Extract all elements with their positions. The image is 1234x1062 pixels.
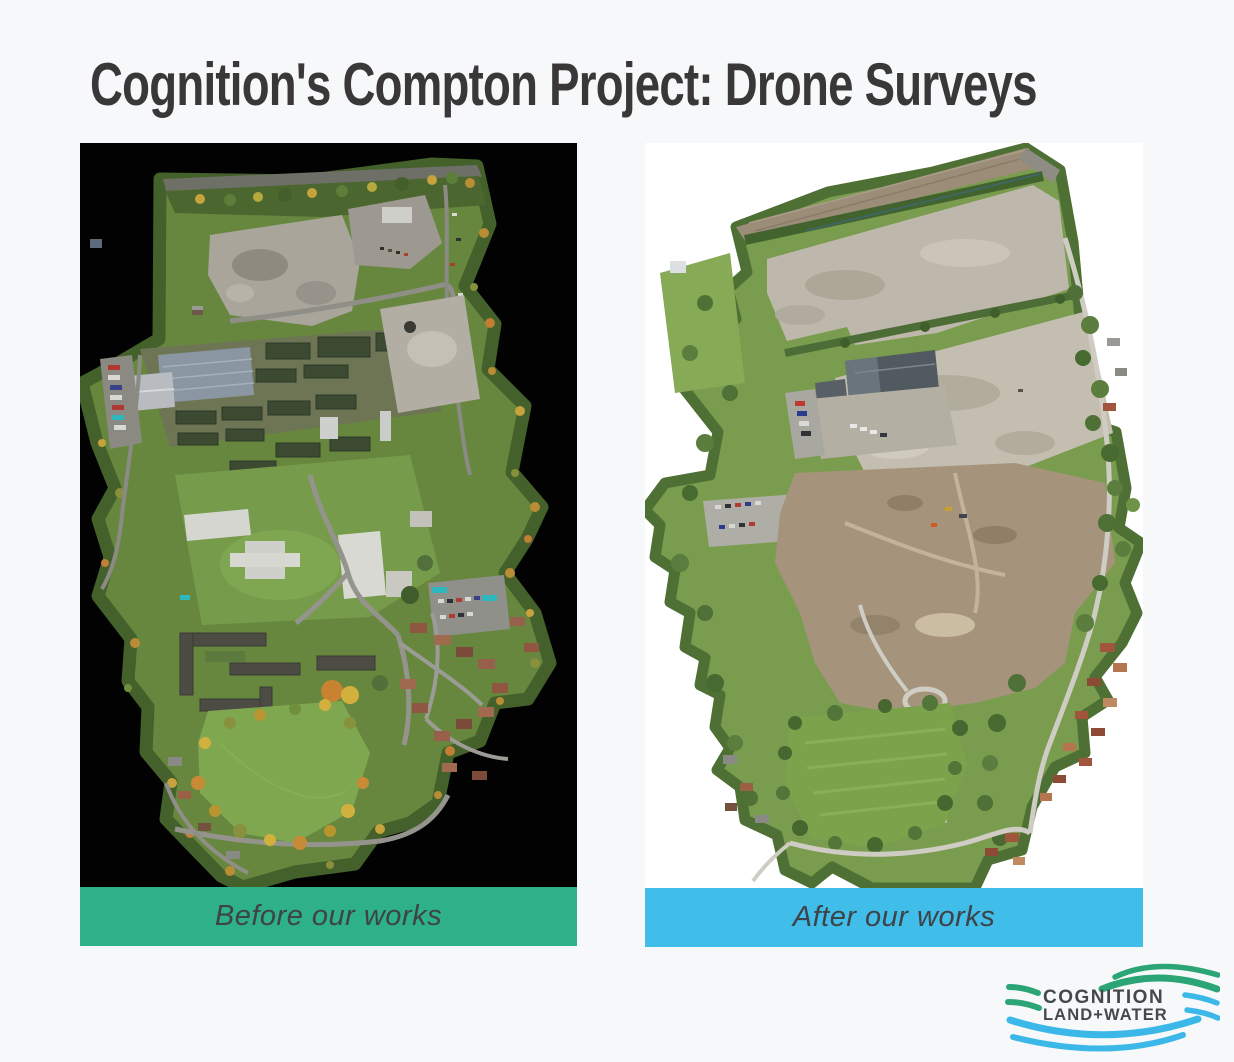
page-title: Cognition's Compton Project: Drone Surve… [90, 50, 1234, 119]
before-caption-label: Before our works [215, 900, 442, 933]
after-orthomosaic [645, 143, 1143, 888]
before-survey-image [80, 143, 577, 887]
before-caption-bar: Before our works [80, 887, 577, 946]
before-panel: Before our works [80, 143, 577, 946]
after-survey-image [645, 143, 1143, 888]
cognition-logo: COGNITION LAND+WATER [1005, 956, 1220, 1056]
page-title-text: Cognition's Compton Project: Drone Surve… [90, 50, 1037, 119]
logo-wordmark-line2: LAND+WATER [1043, 1006, 1168, 1025]
before-orthomosaic [80, 143, 577, 887]
after-caption-bar: After our works [645, 888, 1143, 947]
after-panel: After our works [645, 143, 1143, 947]
infographic-page: Cognition's Compton Project: Drone Surve… [0, 0, 1234, 1062]
after-caption-label: After our works [793, 901, 996, 934]
